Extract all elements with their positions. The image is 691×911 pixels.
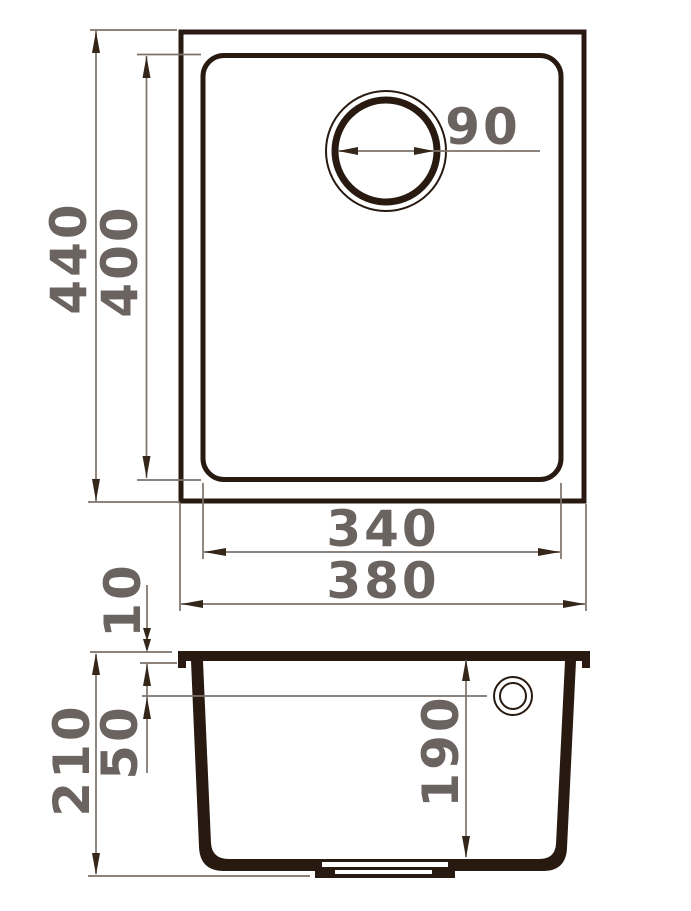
dim-label-10: 10 [94,562,152,638]
sink-dimension-drawing: 440 400 90 340 380 [0,0,691,911]
dim-label-210: 210 [43,703,101,816]
dim-total-height: 210 [43,653,101,875]
side-view [178,651,590,878]
side-view-tub [191,661,576,871]
dim-label-90: 90 [445,98,521,156]
dim-label-400: 400 [91,204,149,317]
dim-bowl-depth: 190 [412,659,470,858]
dim-label-340: 340 [326,500,439,558]
overflow-inner-circle [500,683,526,709]
dim-label-190: 190 [412,694,470,807]
drawing-svg: 440 400 90 340 380 [0,0,691,911]
dim-bowl-height: 400 [91,55,201,481]
dim-rim-thickness: 10 [94,562,152,652]
top-view [181,32,584,501]
dim-label-380: 380 [326,552,439,610]
drain-fitting-slot-bottom [335,870,432,874]
side-view-rim [178,651,590,668]
drain-fitting-slot-top [322,862,448,867]
dim-label-440: 440 [40,201,98,314]
dim-bowl-width: 340 [203,483,561,559]
